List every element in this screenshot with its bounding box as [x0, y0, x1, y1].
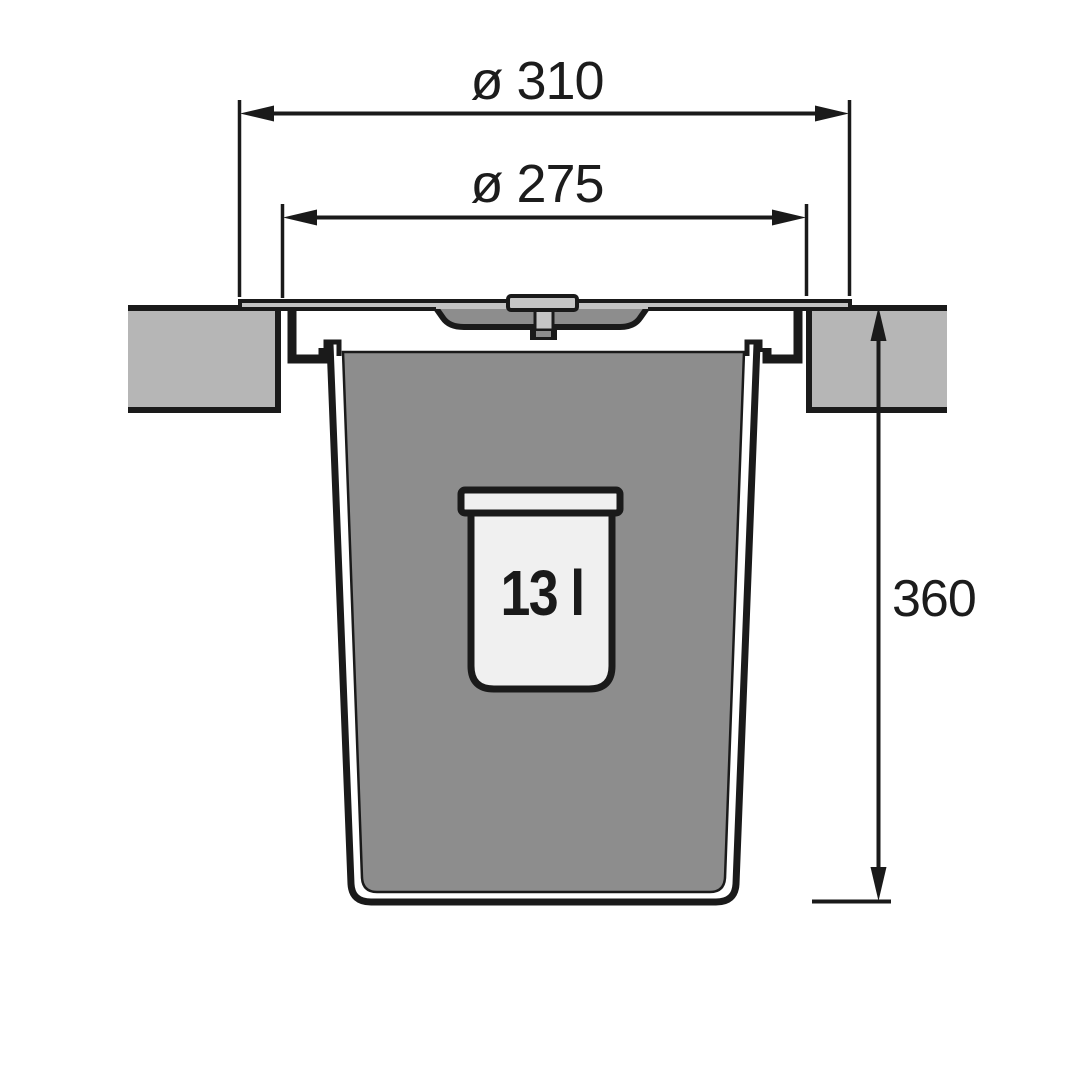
dimension-inset-diameter: ø 275: [283, 154, 807, 298]
dimension-label-275: ø 275: [470, 154, 603, 214]
bucket-lid-bar: [461, 490, 620, 513]
flange-left-hook: [292, 307, 323, 359]
arrow-down-icon: [871, 867, 887, 901]
handle-latch-tab-inner: [536, 331, 551, 337]
countertop-left-slab: [128, 308, 278, 410]
dimension-label-310: ø 310: [470, 51, 603, 111]
arrow-left-icon: [283, 210, 317, 226]
capacity-pictogram: 13 l: [461, 490, 620, 689]
technical-drawing-canvas: 13 l ø 310 ø 275 360: [0, 0, 1080, 1080]
arrow-right-icon: [772, 210, 806, 226]
capacity-label: 13 l: [501, 557, 584, 630]
handle-grip-bar: [508, 296, 577, 310]
waste-bin-diagram: 13 l ø 310 ø 275 360: [0, 0, 1080, 1080]
arrow-right-icon: [815, 106, 849, 122]
arrow-left-icon: [240, 106, 274, 122]
dimension-label-360: 360: [892, 570, 976, 628]
flange-right-hook: [767, 307, 798, 359]
